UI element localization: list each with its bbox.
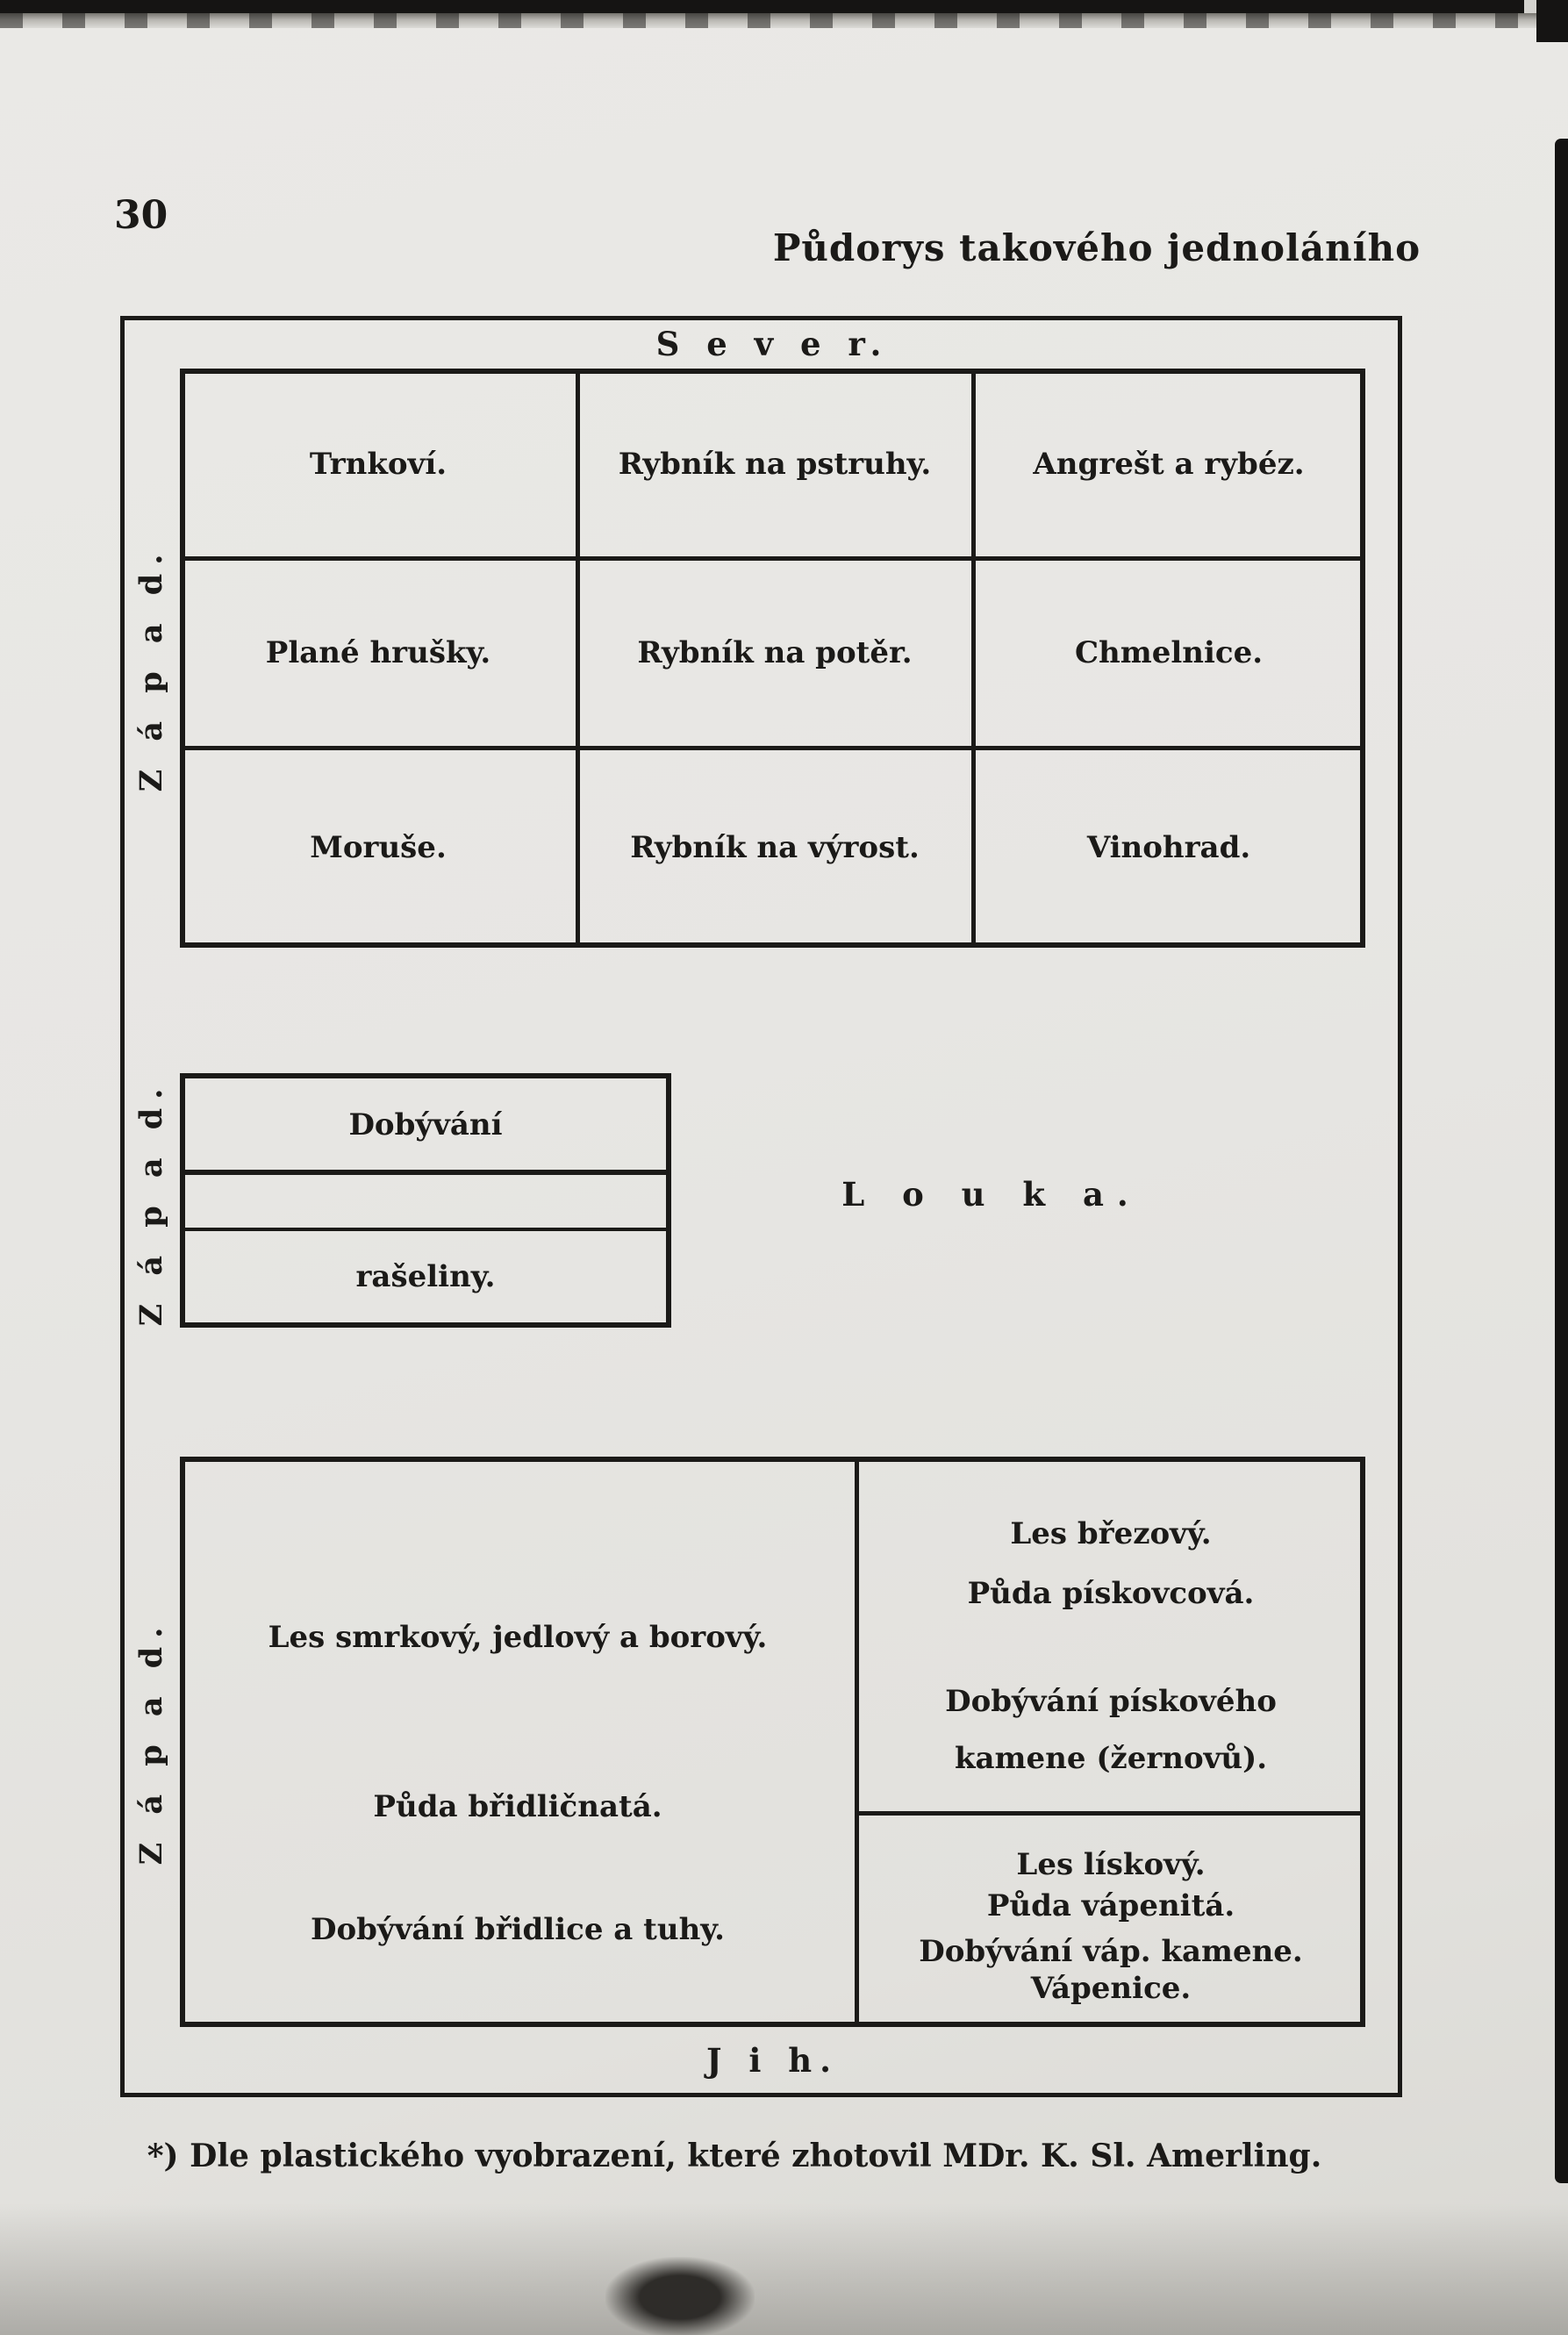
scanned-page: 30 Půdorys takového jednoláního S e v e …	[0, 0, 1568, 2335]
south-left-line3: Dobývání břidlice a tuhy.	[254, 1905, 781, 1954]
south-right-top-line2: Půda pískovcová.	[891, 1571, 1330, 1616]
compass-west-label-2: Z á p a d.	[126, 1019, 175, 1387]
south-right-bottom-line1: Les lískový.	[891, 1844, 1330, 1886]
grid-cell-r3c2: Rybník na výrost.	[591, 823, 959, 872]
grid-cell-r1c3: Angrešt a rybéz.	[984, 440, 1353, 489]
compass-west-label-3: Z á p a d.	[126, 1558, 175, 1926]
scan-notch-top-right	[1524, 0, 1536, 13]
page-number: 30	[114, 193, 168, 238]
compass-north-label: S e v e r.	[180, 319, 1365, 369]
footnote: *) Dle plastického vyobrazení, které zho…	[120, 2138, 1349, 2174]
grid-cell-r1c2: Rybník na pstruhy.	[591, 440, 959, 489]
scan-shade-bottom	[0, 2203, 1568, 2335]
grid-cell-r2c3: Chmelnice.	[984, 628, 1353, 677]
grid-cell-r2c2: Rybník na potěr.	[591, 628, 959, 677]
grid-column-divider-1	[576, 369, 580, 948]
peat-box-divider-2	[180, 1228, 671, 1231]
south-right-top-line4: kamene (žernovů).	[891, 1736, 1330, 1781]
south-left-line1: Les smrkový, jedlový a borový.	[254, 1613, 781, 1662]
grid-column-divider-2	[971, 369, 976, 948]
grid-cell-r3c3: Vinohrad.	[984, 823, 1353, 872]
compass-west-label-1: Z á p a d.	[126, 484, 175, 853]
grid-row-divider-2	[180, 746, 1365, 750]
grid-cell-r2c1: Plané hrušky.	[194, 628, 562, 677]
compass-south-label: J i h.	[180, 2036, 1365, 2085]
peat-box-line2: rašeliny.	[241, 1252, 610, 1301]
south-right-top-line3: Dobývání pískového	[891, 1679, 1330, 1724]
grid-cell-r1c1: Trnkoví.	[194, 440, 562, 489]
grid-cell-r3c1: Moruše.	[194, 823, 562, 872]
south-right-divider	[855, 1811, 1365, 1816]
peat-box-line1: Dobývání	[241, 1100, 610, 1150]
south-right-top-line1: Les březový.	[891, 1511, 1330, 1557]
south-right-bottom-line4: Vápenice.	[891, 1967, 1330, 2009]
south-right-bottom-line2: Půda vápenitá.	[891, 1885, 1330, 1927]
page-title: Půdorys takového jednoláního	[746, 226, 1448, 269]
scan-edge-right	[1555, 139, 1568, 2183]
scan-corner-top-right	[1536, 0, 1568, 42]
grid-row-divider-1	[180, 556, 1365, 561]
scan-blob-bottom	[605, 2257, 755, 2335]
meadow-label: L o u k a.	[816, 1170, 1167, 1219]
peat-box-divider-1	[180, 1170, 671, 1175]
south-right-bottom-line3: Dobývání váp. kamene.	[891, 1930, 1330, 1973]
south-column-divider	[855, 1457, 859, 2027]
scan-edge-top-fade	[0, 13, 1568, 28]
south-left-line2: Půda břidličnatá.	[254, 1782, 781, 1831]
scan-edge-top	[0, 0, 1568, 13]
